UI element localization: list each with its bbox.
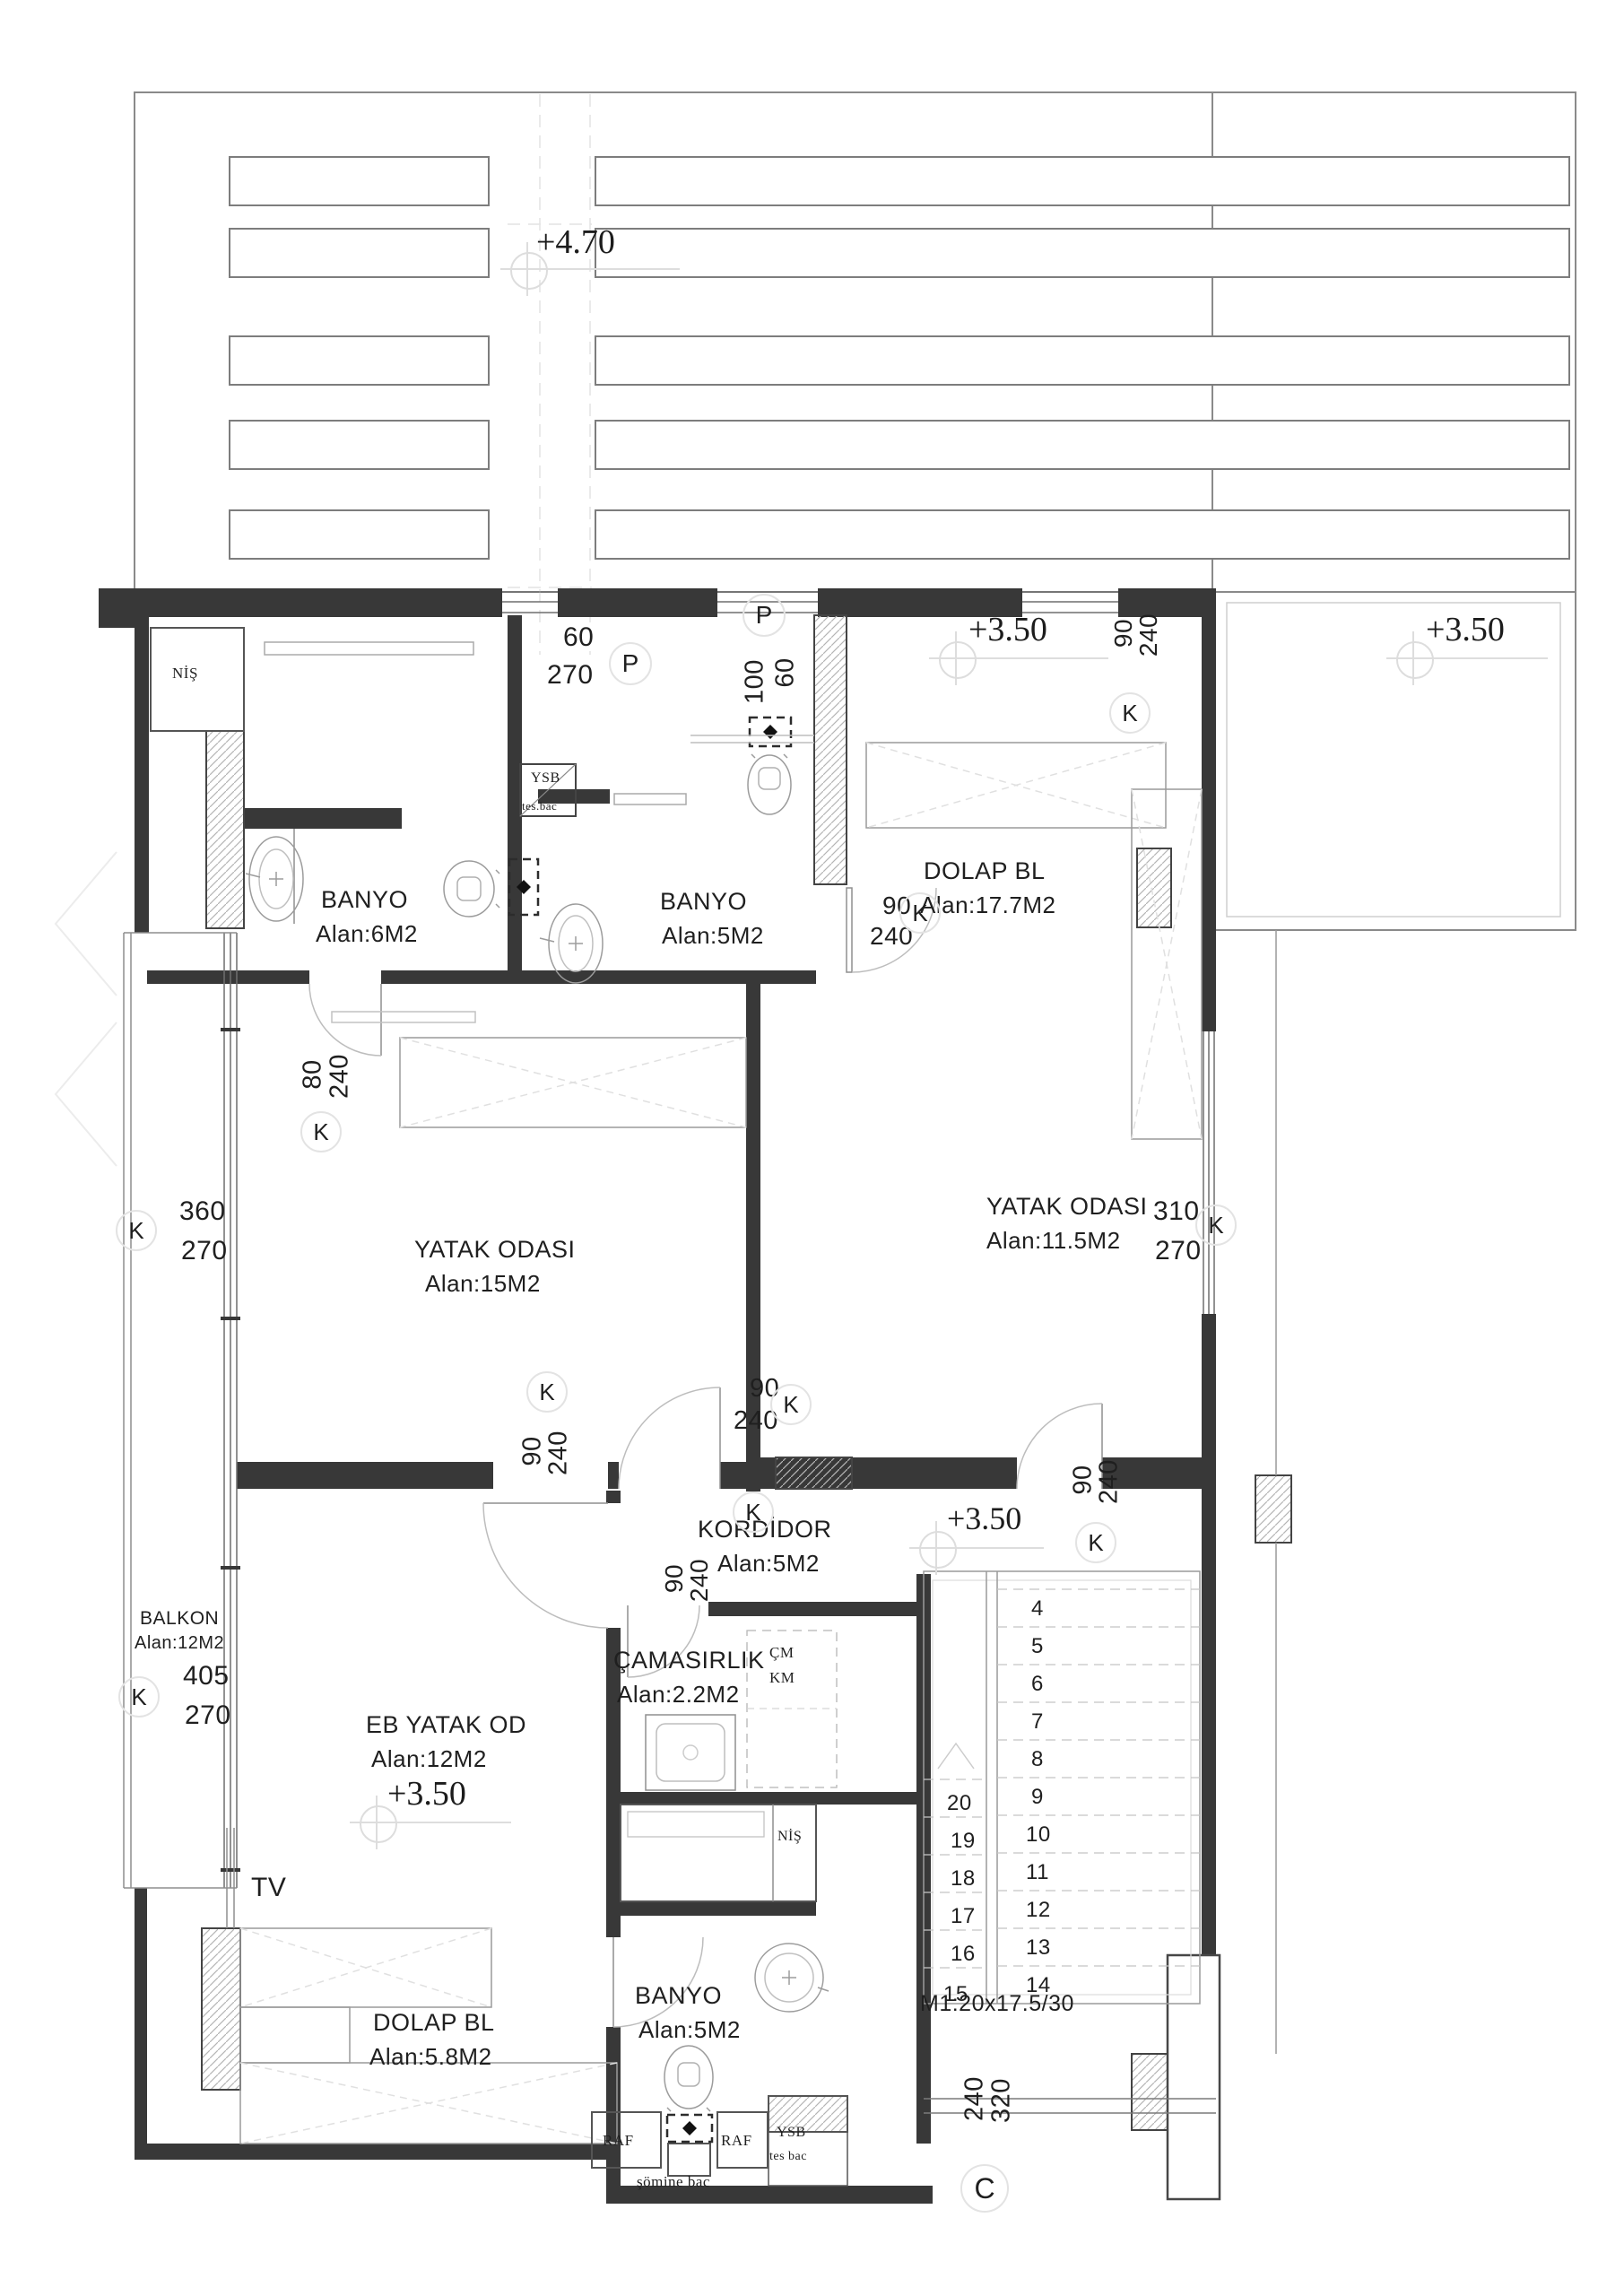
toilet-banyo5 <box>690 717 814 814</box>
pergola-slats-right <box>595 157 1569 559</box>
right-edge-elements <box>1168 930 1276 2199</box>
sink-banyo-bottom <box>755 1944 829 2012</box>
closets <box>240 743 1202 2144</box>
misc-furniture <box>151 628 847 2186</box>
axis-dashed-lines <box>508 94 592 655</box>
walls <box>99 588 1216 2204</box>
toilet-banyo6 <box>444 859 538 917</box>
floor-plan-page: 60270NİŞYSBtes.bac10060BANYOAlan:6M2BANY… <box>0 0 1624 2296</box>
stair-direction-arrow <box>938 1744 974 1769</box>
toilet-banyo-bottom <box>664 2046 713 2142</box>
pergola-slats-left <box>230 157 489 559</box>
left-faint-marks <box>56 852 117 1166</box>
roof-terrace <box>135 92 1576 930</box>
staircase <box>924 1571 1200 2004</box>
floor-plan-drawing <box>0 0 1624 2296</box>
